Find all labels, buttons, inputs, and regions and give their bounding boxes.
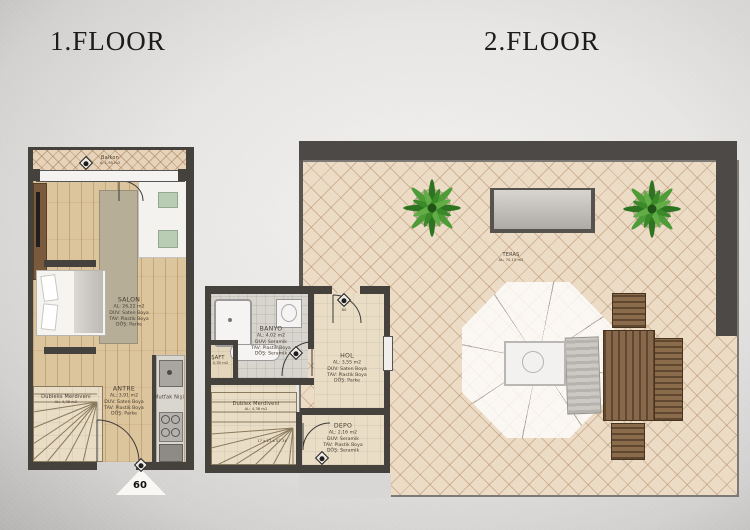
wall-bottom-left xyxy=(28,462,97,470)
antre-area: AL: 3,91 m2 xyxy=(104,392,144,398)
sun-lounger xyxy=(565,336,602,414)
saft-wall-v xyxy=(233,345,238,378)
banyo-name: BANYO xyxy=(251,326,291,333)
wood-chair-bottom xyxy=(611,423,645,460)
door-width-value: 60 xyxy=(133,480,147,491)
interior-bottom-wall xyxy=(205,465,390,473)
teras-area: AL: 70,15 m2 xyxy=(498,257,523,262)
wall-stub-lower xyxy=(44,347,96,354)
potted-plant xyxy=(620,177,684,241)
burner-icon xyxy=(171,428,180,437)
mutfak-name: Mutfak Nişi xyxy=(154,394,184,400)
salon-name: SALON xyxy=(109,297,149,304)
balkon-area: A: 1,95 m2 xyxy=(100,160,121,165)
antre-label: ANTRE AL: 3,91 m2 DUV: Saten Boya TAV: P… xyxy=(104,386,144,417)
kitchen-divider-wall xyxy=(152,355,156,462)
salon-label: SALON AL: 26,22 m2 DUV: Saten Boya TAV: … xyxy=(109,297,149,328)
balkon-label: Balkon A: 1,95 m2 xyxy=(100,155,121,165)
potted-plant xyxy=(400,176,464,240)
floor1-title: 1.FLOOR xyxy=(50,26,166,57)
banyo-hol-wall xyxy=(308,293,314,349)
banyo-bottom-wall xyxy=(211,378,314,385)
depo-floor-finish: DÖŞ: Seramik xyxy=(323,447,363,453)
wood-chair-top xyxy=(612,293,646,328)
floorplan-sheet: 1.FLOOR 2.FLOOR xyxy=(0,0,750,530)
window-post-left xyxy=(33,169,40,181)
window-post-right xyxy=(178,169,186,181)
hol-wall-finish: DUV: Saten Boya xyxy=(327,365,367,371)
hol-door-width: 80 xyxy=(342,308,347,313)
hol-area: AL: 3,55 m2 xyxy=(327,359,367,365)
salon-wall-finish: DUV: Saten Boya xyxy=(109,309,149,315)
interior-right-wall-upper xyxy=(384,286,390,336)
wood-table xyxy=(603,330,655,421)
wall-right xyxy=(186,147,194,470)
hol-name: HOL xyxy=(327,353,367,360)
stairs2-step-dim: 17 x 27 x 57.34 xyxy=(257,439,286,444)
banyo-wall-finish: DUV: Seramik xyxy=(251,338,291,344)
balcony-door-arc xyxy=(118,180,144,202)
balcony-window xyxy=(36,170,185,182)
banyo-label: BANYO AL: 4,02 m2 DUV: Seramik TAV: Plas… xyxy=(251,326,291,357)
saft-area: A: 0,30 m2 xyxy=(208,360,229,365)
stairs1-label: Dubleks Merdiveni AL: 4,38 m2 xyxy=(41,394,91,404)
hol-floor-finish: DÖŞ: Parke xyxy=(327,377,367,383)
shower-drain-icon xyxy=(228,318,232,322)
burner-icon xyxy=(171,415,180,424)
depo-wall-finish: DUV: Seramik xyxy=(323,435,363,441)
tv-icon xyxy=(36,192,40,247)
sofa-cushion xyxy=(158,230,178,248)
terrace-right-wall xyxy=(716,158,737,336)
bed-blanket xyxy=(74,271,103,333)
antre-name: ANTRE xyxy=(104,386,144,393)
terrace-bench xyxy=(490,188,595,233)
terrace-notch-mask xyxy=(299,473,391,498)
floor2-title: 2.FLOOR xyxy=(484,26,600,57)
saft-wall-h xyxy=(205,340,238,345)
interior-right-wall-lower xyxy=(384,369,390,465)
terrace-top-wall xyxy=(299,141,737,160)
entry-door-arc xyxy=(96,418,140,462)
pillow xyxy=(41,303,59,330)
saft-label: ŞAFT A: 0,30 m2 xyxy=(208,355,229,365)
teras-label: TERAS AL: 70,15 m2 xyxy=(498,252,523,262)
burner-icon xyxy=(161,428,170,437)
stairs-depo-wall xyxy=(296,412,302,465)
banyo-floor-finish: DÖŞ: Seramik xyxy=(251,350,291,356)
hol-label: HOL AL: 3,55 m2 DUV: Saten Boya TAV: Pla… xyxy=(327,353,367,384)
antre-floor-finish: DÖŞ: Parke xyxy=(104,410,144,416)
wall-stub-upper xyxy=(44,260,96,267)
burner-icon xyxy=(161,415,170,424)
stairs2-area: AL: 4,38 m2 xyxy=(233,406,280,411)
antre-wall-finish: DUV: Saten Boya xyxy=(104,398,144,404)
mutfak-label: Mutfak Nişi xyxy=(154,394,184,400)
table-centerpiece xyxy=(522,351,544,373)
wood-bench-right xyxy=(654,338,683,421)
oven xyxy=(159,444,183,462)
salon-area: AL: 26,22 m2 xyxy=(109,303,149,309)
depo-label: DEPO AL: 2,16 m2 DUV: Seramik TAV: Plast… xyxy=(323,423,363,454)
depo-area: AL: 2,16 m2 xyxy=(323,429,363,435)
wall-top xyxy=(28,147,194,150)
hol-terrace-door xyxy=(383,336,393,371)
salon-floor-finish: DÖŞ: Parke xyxy=(109,321,149,327)
stairs2-label: Dublex Merdiveni AL: 4,38 m2 xyxy=(233,401,280,411)
depo-name: DEPO xyxy=(323,423,363,430)
banyo-area: AL: 4,02 m2 xyxy=(251,332,291,338)
basin-bowl-icon xyxy=(281,304,297,322)
sink-drain-icon xyxy=(167,370,172,375)
sofa-cushion xyxy=(158,192,178,208)
terrace-left-wall xyxy=(299,160,303,288)
stairs1-area: AL: 4,38 m2 xyxy=(41,399,91,404)
wall-left xyxy=(28,147,33,470)
stairs2-step-dim-value: 17 x 27 x 57.34 xyxy=(257,439,286,444)
hol-depo-wall xyxy=(300,408,390,415)
hol-door-width-value: 80 xyxy=(342,308,347,313)
